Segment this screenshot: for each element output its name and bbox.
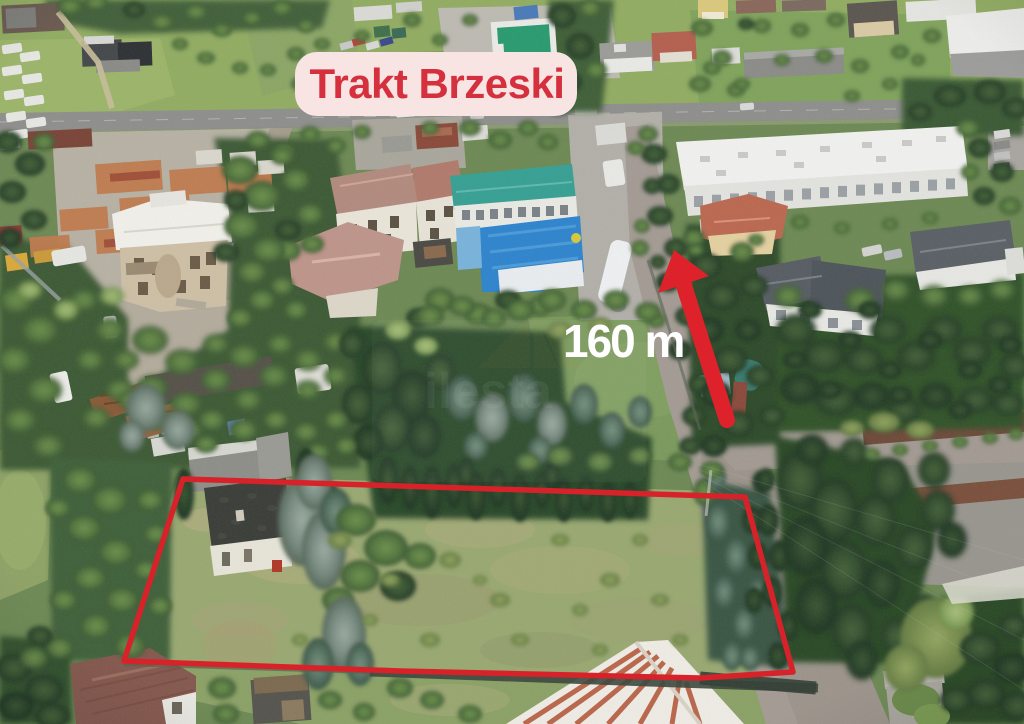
svg-text:Trakt Brzeski: Trakt Brzeski	[310, 60, 565, 107]
svg-text:ilesta: ilesta	[424, 363, 553, 419]
svg-text:160 m: 160 m	[563, 315, 684, 367]
